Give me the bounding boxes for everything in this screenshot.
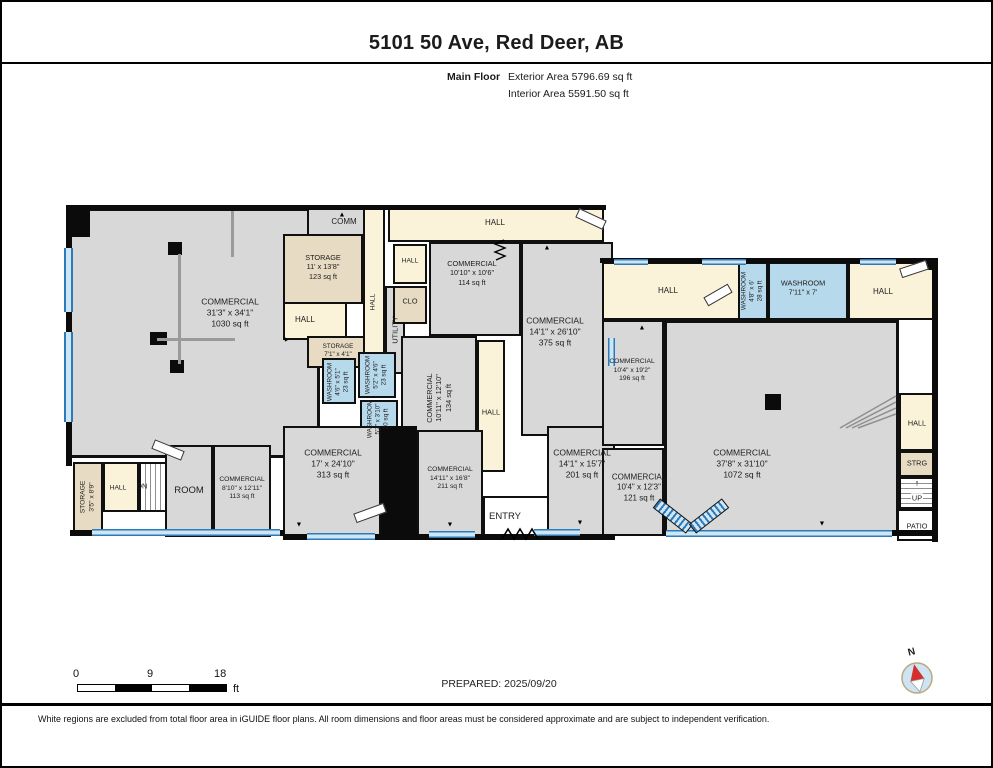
window-top-right-a — [614, 259, 648, 265]
arrow-down-icon: ▼ — [296, 522, 303, 529]
page-title: 5101 50 Ave, Red Deer, AB — [2, 32, 991, 55]
label-hall-col: HALL — [908, 418, 926, 427]
label-washroom-7x7: WASHROOM7'11" x 7' — [781, 279, 825, 298]
wall-left-c — [66, 422, 72, 466]
label-hall-dn: HALL — [110, 485, 127, 494]
label-washroom-23b: WASHROOM5'2" x 4'6"23 sq ft — [365, 356, 390, 394]
arrow-up-icon: ▲ — [639, 325, 646, 332]
wall-right — [932, 258, 938, 542]
scale-start: 0 — [73, 668, 79, 680]
label-commercial-201: COMMERCIAL14'1" x 15'7"201 sq ft — [553, 447, 611, 480]
label-commercial-1072: COMMERCIAL37'8" x 31'10"1072 sq ft — [713, 447, 771, 480]
label-patio: PATIO — [907, 521, 928, 530]
label-strg: STRG — [907, 458, 927, 467]
exterior-area: Exterior Area 5796.69 sq ft — [508, 71, 632, 83]
label-commercial-121: COMMERCIAL10'4" x 12'3"121 sq ft — [612, 472, 666, 503]
label-hall-top: HALL — [485, 218, 505, 228]
arrow-up-icon: ▲ — [339, 212, 346, 219]
scale-end: 18 — [214, 668, 226, 680]
label-washroom-20: WASHROOM5'2" x 3'10"20 sq ft — [367, 400, 392, 438]
window-top-right-b — [702, 259, 746, 265]
label-commercial-134: COMMERCIAL10'11" x 12'10"134 sq ft — [425, 373, 453, 422]
label-hall-right-right: HALL — [873, 287, 893, 297]
wall-left-b — [66, 310, 72, 332]
wall-shaft — [381, 426, 417, 540]
window-top-right-c — [860, 259, 896, 265]
label-storage-strip: STORAGE3'5" x 8'9" — [79, 481, 96, 514]
pillar-c — [170, 360, 184, 373]
wall-left-a — [66, 205, 72, 249]
label-up: UP — [911, 493, 923, 502]
label-hall-vert: HALL — [370, 294, 379, 311]
window-bottom-313 — [307, 533, 375, 540]
header-divider — [2, 62, 993, 64]
label-commercial-1030: COMMERCIAL31'3" x 34'1"1030 sq ft — [201, 296, 259, 329]
beam-top — [231, 211, 234, 257]
up-arrow-icon: ↑ — [915, 478, 920, 488]
label-storage-123: STORAGE11' x 13'8"123 sq ft — [305, 253, 341, 281]
floor-plan-page: 5101 50 Ave, Red Deer, AB Main Floor Ext… — [0, 0, 993, 768]
window-left-upper — [64, 248, 73, 312]
label-commercial-114: COMMERCIAL10'10" x 10'6"114 sq ft — [447, 259, 496, 287]
label-commercial-375: COMMERCIAL14'1" x 26'10"375 sq ft — [526, 315, 584, 348]
label-commercial-196: COMMERCIAL10'4" x 19'2"196 sq ft — [609, 358, 654, 384]
window-bottom-201 — [534, 529, 580, 536]
interior-area: Interior Area 5591.50 sq ft — [508, 88, 629, 100]
arrow-right-icon: ► — [284, 337, 291, 344]
label-hall-right-left: HALL — [658, 286, 678, 296]
beam-vertical — [178, 254, 181, 364]
beam-horizontal — [157, 338, 235, 341]
diagonal-stairs-icon — [838, 390, 900, 430]
arrow-down-icon: ▼ — [819, 521, 826, 528]
arrow-down-icon: ▼ — [447, 522, 454, 529]
prepared-date: PREPARED: 2025/09/20 — [441, 678, 556, 690]
label-washroom-28: WASHROOM4'8" x 6'28 sq ft — [741, 272, 766, 310]
arrow-up-icon: ▲ — [544, 245, 551, 252]
label-utility: UTILITY — [390, 316, 399, 343]
room-hall-vert — [363, 208, 385, 374]
label-storage-small: STORAGE7'1" x 4'1" — [323, 343, 354, 359]
scale-bar — [77, 684, 227, 692]
scale-unit: ft — [233, 683, 239, 695]
window-bottom-211 — [429, 531, 475, 538]
label-commercial-313: COMMERCIAL17' x 24'10"313 sq ft — [304, 447, 362, 480]
disclaimer-text: White regions are excluded from total fl… — [38, 714, 769, 724]
label-dn: DN — [137, 481, 148, 490]
label-hall-left: HALL — [295, 315, 315, 325]
label-entry: ENTRY — [489, 511, 521, 523]
window-left-lower — [64, 332, 73, 422]
wall-top-left — [66, 205, 606, 210]
scale-mid: 9 — [147, 668, 153, 680]
label-commercial-211: COMMERCIAL14'11" x 16'8"211 sq ft — [427, 466, 472, 492]
label-washroom-23a: WASHROOM4'6" x 5'1"23 sq ft — [327, 363, 352, 401]
label-commercial-113: COMMERCIAL8'10" x 12'11"113 sq ft — [219, 476, 264, 502]
label-room: ROOM — [174, 485, 204, 497]
label-hall-mid: HALL — [482, 407, 500, 416]
window-bottom-1072 — [666, 530, 892, 537]
label-hall-small: HALL — [402, 258, 419, 267]
floor-label: Main Floor — [447, 71, 500, 83]
entry-zigzag-icon — [500, 526, 540, 542]
footer-divider — [2, 703, 993, 706]
arrow-down-icon: ▼ — [577, 520, 584, 527]
label-clo: CLO — [402, 296, 417, 305]
compass-icon — [895, 654, 943, 702]
window-bottom-left — [92, 529, 280, 536]
pillar-1072 — [765, 394, 781, 410]
